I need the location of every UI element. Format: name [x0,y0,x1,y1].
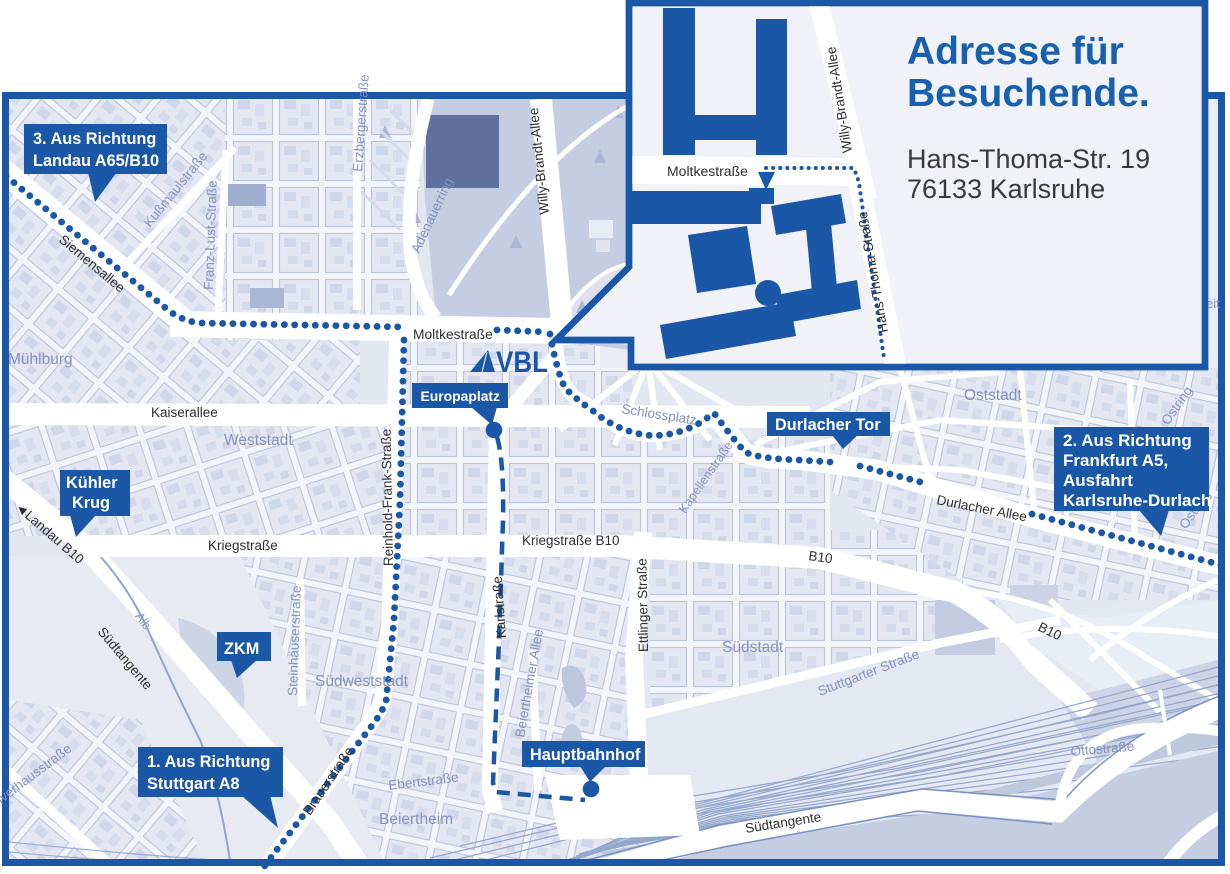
svg-text:Beiertheim: Beiertheim [379,811,453,828]
svg-text:Adresse für: Adresse für [907,30,1124,73]
svg-text:Ausfahrt: Ausfahrt [1063,471,1133,490]
svg-text:2. Aus Richtung: 2. Aus Richtung [1063,431,1192,450]
svg-text:Kriegstraße: Kriegstraße [208,538,278,553]
svg-text:Frankfurt A5,: Frankfurt A5, [1063,451,1168,470]
svg-text:Kühler: Kühler [66,474,118,492]
svg-text:Hans-Thoma-Str. 19: Hans-Thoma-Str. 19 [907,144,1150,174]
svg-text:3. Aus Richtung: 3. Aus Richtung [33,130,156,148]
svg-text:Ettlinger Straße: Ettlinger Straße [634,558,651,652]
svg-text:Weststadt: Weststadt [224,432,293,449]
svg-text:Karlsruhe-Durlach: Karlsruhe-Durlach [1063,491,1211,510]
svg-text:Europaplatz: Europaplatz [421,388,501,404]
svg-text:Stuttgart A8: Stuttgart A8 [147,775,240,793]
svg-text:76133 Karlsruhe: 76133 Karlsruhe [907,174,1105,204]
svg-text:Reinhold-Frank-Straße: Reinhold-Frank-Straße [379,429,396,567]
svg-text:Moltkestraße: Moltkestraße [667,163,748,179]
svg-text:Kaiserallee: Kaiserallee [151,405,218,420]
svg-text:VBL: VBL [496,346,548,379]
svg-text:Südweststadt: Südweststadt [315,673,409,690]
svg-text:1. Aus Richtung: 1. Aus Richtung [147,753,270,771]
svg-text:ZKM: ZKM [224,640,259,658]
svg-text:Oststadt: Oststadt [964,387,1022,404]
svg-text:Krug: Krug [72,494,110,512]
svg-text:Durlacher Tor: Durlacher Tor [775,416,881,434]
svg-text:Mühlburg: Mühlburg [8,351,73,368]
svg-text:Kriegstraße B10: Kriegstraße B10 [522,533,620,548]
svg-text:Moltkestraße: Moltkestraße [413,327,493,342]
svg-text:Südstadt: Südstadt [722,639,784,656]
svg-text:Besuchende.: Besuchende. [907,72,1150,115]
svg-text:Hauptbahnhof: Hauptbahnhof [530,746,641,764]
svg-text:Landau A65/B10: Landau A65/B10 [33,152,159,170]
